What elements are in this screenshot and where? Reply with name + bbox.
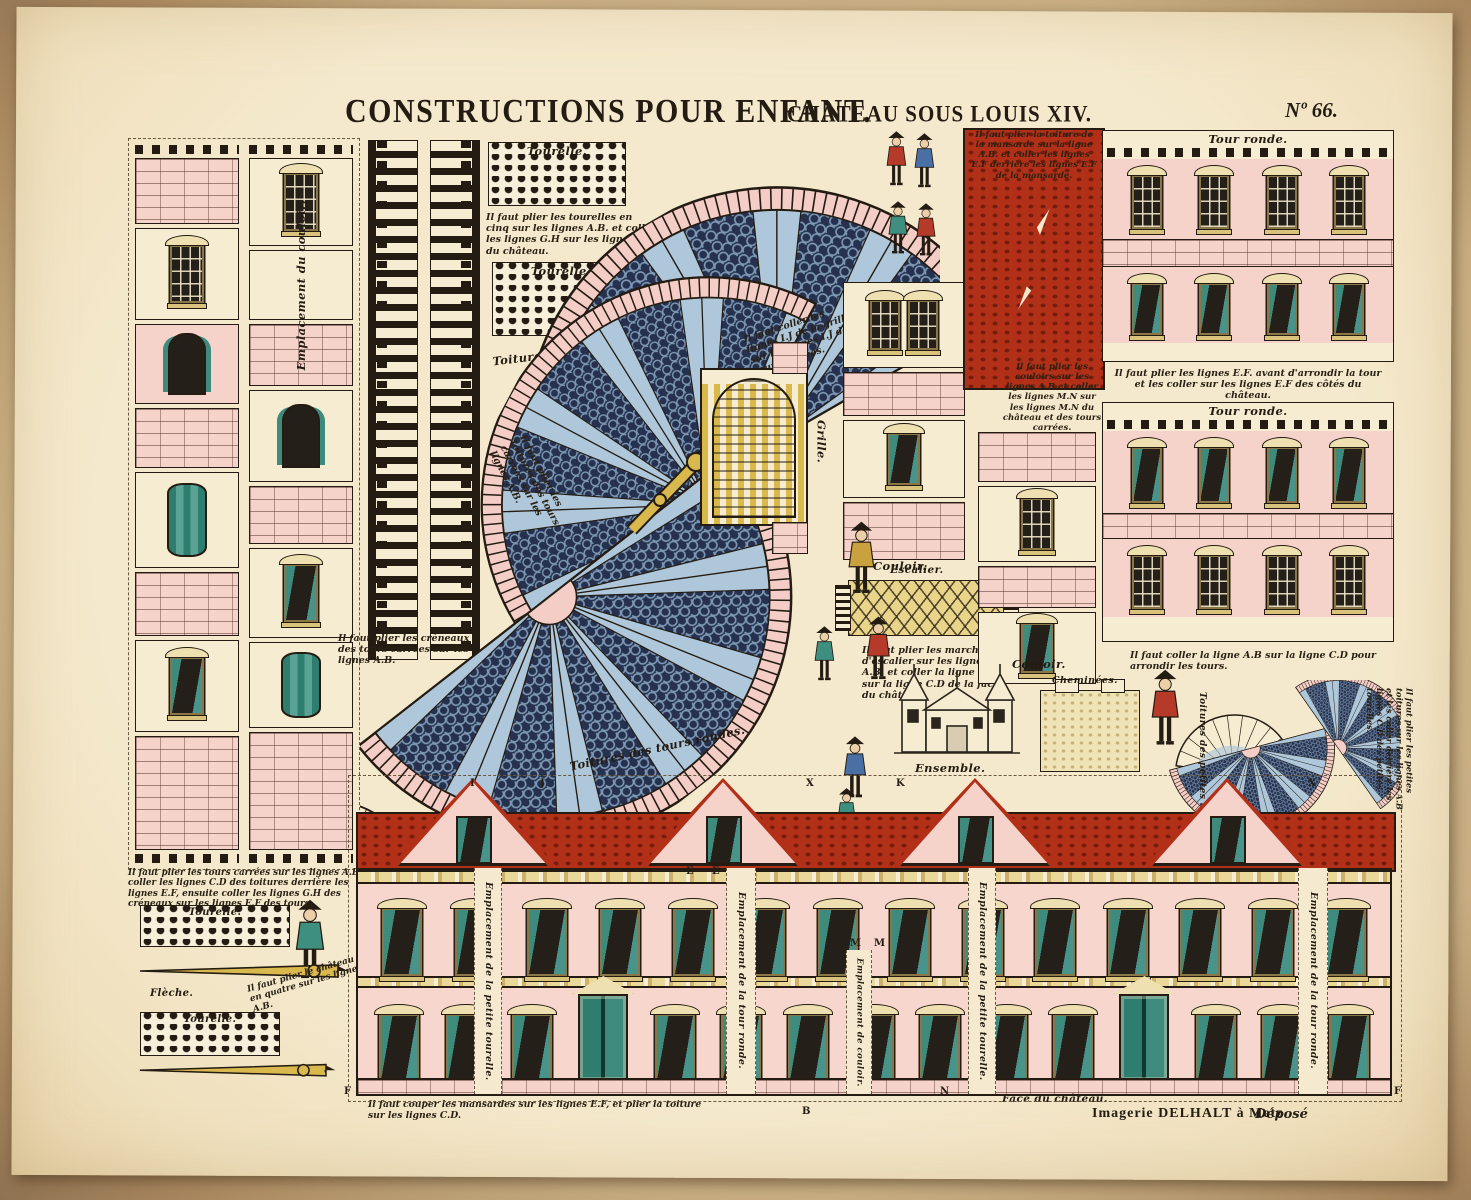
facade-gable <box>648 782 798 866</box>
mark-J: J <box>540 778 545 789</box>
mark-M: M <box>850 938 861 949</box>
tower-window <box>170 657 204 715</box>
small-turret-strip: Tourelle. <box>140 1012 280 1056</box>
facade-window-lower <box>655 1014 695 1082</box>
facade-window-lower <box>1262 1014 1302 1082</box>
brick-segment <box>135 572 239 636</box>
instruction-mansard-roof: Il faut plier la toiture de la mansarde … <box>971 130 1097 181</box>
round-tower-window <box>1267 555 1297 609</box>
gable-window <box>456 816 492 864</box>
tower-window <box>284 564 318 622</box>
depose-mark: Déposé <box>1255 1107 1308 1122</box>
round-tower-window <box>1334 447 1364 503</box>
gate-arch <box>712 378 796 518</box>
gate-pillar-brick <box>772 342 808 374</box>
green-column <box>167 483 207 557</box>
emplacement-petite-tourelle-label: Emplacement de la petite tourelle. <box>977 882 987 1081</box>
figure-red-coat <box>1148 668 1218 758</box>
mark-M: M <box>874 938 885 949</box>
facade-window-lower <box>920 1014 960 1082</box>
facade-window-upper <box>1253 908 1293 976</box>
mark-E: E <box>686 866 694 877</box>
round-tower-window <box>1334 283 1364 335</box>
facade-window-upper <box>1326 908 1366 976</box>
facade-door <box>1119 994 1169 1082</box>
figure-gentleman <box>845 520 925 610</box>
mark-B: B <box>802 1106 810 1117</box>
print-sheet-scan: CONSTRUCTIONS POUR ENFANT. CHÂTEAU SOUS … <box>0 0 1471 1200</box>
mansard-wall-column <box>843 282 965 560</box>
instruction-tours-carrees: Il faut plier les tours carrées sur les … <box>128 868 378 910</box>
crenellation-edge <box>135 854 239 863</box>
facade-window-upper <box>382 908 422 976</box>
round-tower-window <box>1132 175 1162 229</box>
costumed-figures-top <box>880 128 970 288</box>
brick-segment <box>249 486 353 544</box>
brick-segment <box>135 736 239 850</box>
gate-pillar-brick <box>772 522 808 554</box>
green-column <box>281 652 321 718</box>
facade-window-lower <box>512 1014 552 1082</box>
round-tower-window <box>1199 447 1229 503</box>
grille-label: Grille. <box>815 420 828 463</box>
tour-ronde-label: Tour ronde. <box>1103 133 1393 146</box>
round-tower-window <box>1267 175 1297 229</box>
facade-window-lower <box>1053 1014 1093 1082</box>
tour-ronde-strip-1: Tour ronde. <box>1102 130 1394 362</box>
tower-face-strip: Emplacement du couloir. <box>249 145 353 863</box>
gable-window <box>1210 816 1246 864</box>
facade-window-upper <box>600 908 640 976</box>
emplacement-petite-tourelle-label: Emplacement de la petite tourelle. <box>483 882 493 1081</box>
mark-E: E <box>712 866 720 877</box>
ensemble-label: Ensemble. <box>915 762 985 775</box>
instruction-couloirs: Il faut plier les couloirs sur les ligne… <box>1000 362 1104 433</box>
mark-F: F <box>344 1086 351 1097</box>
cornice-band <box>358 976 1390 988</box>
crenellation-edge <box>135 145 239 154</box>
facade-window-upper <box>890 908 930 976</box>
facade-window-upper <box>1035 908 1075 976</box>
tourelle-label: Tourelle. <box>141 1014 279 1025</box>
grille-piece <box>700 368 808 526</box>
crenellation-edge <box>249 854 353 863</box>
facade-door <box>578 994 628 1082</box>
fleche-label-2: Flèche. <box>150 988 193 999</box>
mark-X: X <box>806 778 814 789</box>
cheminees-label: Cheminées. <box>1052 676 1118 686</box>
mansard-window <box>888 433 920 485</box>
emplacement-couloir-label: Emplacement de couloir. <box>854 958 863 1087</box>
mansard-roof-piece: Il faut plier la toiture de la mansarde … <box>963 128 1105 390</box>
window-segment <box>135 228 239 320</box>
small-turret-strip: Tourelle. <box>140 905 290 947</box>
gable-window <box>958 816 994 864</box>
mark-N: N <box>940 1086 949 1097</box>
mansard-wall-column-2 <box>978 432 1096 684</box>
gable-window <box>706 816 742 864</box>
square-tower-faces-sheet: Emplacement du couloir. <box>128 138 360 870</box>
cornice-band <box>358 870 1390 884</box>
facade-window-lower <box>1196 1014 1236 1082</box>
facade-gable <box>900 782 1050 866</box>
facade-window-lower <box>788 1014 828 1082</box>
tour-ronde-label: Tour ronde. <box>1103 405 1393 418</box>
facade-gable <box>398 782 548 866</box>
instruction-crenaux: Il faut plier les créneaux des tours car… <box>338 633 488 667</box>
round-tower-window <box>1199 555 1229 609</box>
loggia-segment <box>135 324 239 404</box>
round-tower-window <box>1267 447 1297 503</box>
face-du-chateau-label: Face du château. <box>1002 1094 1108 1106</box>
facade-window-lower <box>1329 1014 1369 1082</box>
mark-F: F <box>1394 1086 1401 1097</box>
brick-segment <box>135 158 239 224</box>
spire-piece-2 <box>138 1058 338 1086</box>
arched-niche <box>168 333 206 395</box>
tour-ronde-strip-2: Tour ronde. <box>1102 402 1394 642</box>
facade-window-upper <box>527 908 567 976</box>
tourelle-label: Tourelle. <box>141 907 289 918</box>
round-tower-window <box>1132 447 1162 503</box>
facade-gable <box>1152 782 1302 866</box>
tower-face-strip <box>135 145 239 863</box>
facade-window-upper <box>1108 908 1148 976</box>
cheminees-piece <box>1040 690 1140 772</box>
mansard-window <box>870 300 900 350</box>
mark-K: K <box>896 778 905 789</box>
mark-I: I <box>470 778 475 789</box>
crenellation-edge <box>249 145 353 154</box>
instruction-mansardes-cut: Il faut couper les mansardes sur les lig… <box>368 1100 708 1122</box>
round-tower-window <box>1199 175 1229 229</box>
round-tower-window <box>1132 555 1162 609</box>
round-tower-window <box>1132 283 1162 335</box>
ensemble-vignette <box>892 658 1032 766</box>
round-tower-window <box>1334 175 1364 229</box>
plate-number: Nº 66. <box>1285 98 1338 123</box>
mansard-window <box>1021 498 1053 550</box>
round-tower-window <box>1199 283 1229 335</box>
facade-window-upper <box>1180 908 1220 976</box>
facade-window-lower <box>379 1014 419 1082</box>
emplacement-tour-ronde-label: Emplacement de la tour ronde. <box>1308 892 1318 1069</box>
mark-X: X <box>1308 778 1316 789</box>
separator-tour-ronde: Emplacement de la tour ronde. <box>726 868 756 1094</box>
facade-window-upper <box>673 908 713 976</box>
mansard-window <box>908 300 938 350</box>
facade-wall <box>356 868 1392 1096</box>
instruction-tour-ronde-1: Il faut plier les lignes E.F. avant d'ar… <box>1112 368 1384 402</box>
arched-niche <box>282 404 320 468</box>
tower-window <box>170 245 204 303</box>
separator-petite-tourelle: Emplacement de la petite tourelle. <box>968 868 996 1094</box>
round-tower-window <box>1334 555 1364 609</box>
round-tower-window <box>1267 283 1297 335</box>
separator-petite-tourelle: Emplacement de la petite tourelle. <box>474 868 502 1094</box>
separator-couloir: Emplacement de couloir. <box>846 950 872 1094</box>
brick-segment <box>249 732 353 850</box>
emplacement-tour-ronde-label: Emplacement de la tour ronde. <box>736 892 746 1069</box>
separator-tour-ronde: Emplacement de la tour ronde. <box>1298 868 1328 1094</box>
emplacement-couloir-label: Emplacement du couloir. <box>295 200 308 370</box>
brick-segment <box>135 408 239 468</box>
instruction-petites-toitures: Il faut plier les petites toitures sur l… <box>1364 688 1414 820</box>
